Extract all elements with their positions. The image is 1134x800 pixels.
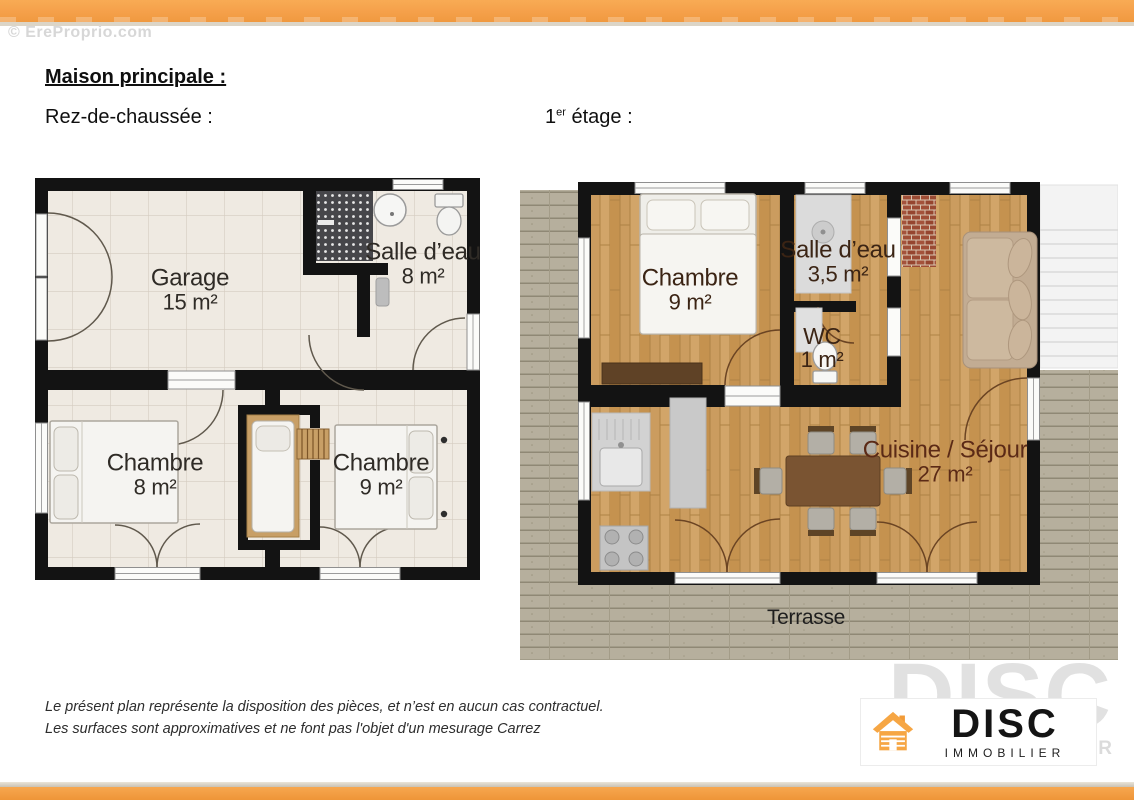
first-floor-ordinal: er <box>556 106 566 118</box>
house-icon <box>871 709 915 755</box>
room-label-salle-deau: Salle d’eau 3,5 m² <box>780 238 895 287</box>
sink-icon <box>374 194 406 226</box>
sofa-icon <box>963 232 1037 368</box>
room-label-wc: WC 1 m² <box>801 324 844 372</box>
disclaimer-line-2: Les surfaces sont approximatives et ne f… <box>45 719 604 741</box>
kitchen-island-icon <box>670 398 706 508</box>
first-floor-heading: 1er étage : <box>545 106 633 129</box>
room-label-chambre-2: Chambre 9 m² <box>333 451 430 500</box>
site-watermark: © EreProprio.com <box>8 24 152 42</box>
dresser-icon <box>602 363 702 384</box>
room-label-garage: Garage 15 m² <box>151 266 229 315</box>
disclaimer: Le présent plan représente la dispositio… <box>45 697 604 741</box>
fireplace-icon <box>902 195 936 267</box>
agency-logo: DISC IMMOBILIER <box>860 698 1097 766</box>
disclaimer-line-1: Le présent plan représente la dispositio… <box>45 697 604 719</box>
top-orange-bar <box>0 0 1134 22</box>
first-floor-plan: Chambre 9 m² Salle d’eau 3,5 m² WC 1 m² … <box>520 180 1118 660</box>
stairs-icon <box>297 429 329 459</box>
agency-brand: DISC <box>951 704 1059 744</box>
first-floor-text: étage : <box>566 106 633 128</box>
room-label-cuisine-sejour: Cuisine / Séjour 27 m² <box>863 438 1028 487</box>
kitchen-counter-icon <box>592 413 650 491</box>
top-divider-line <box>0 22 1134 26</box>
stove-icon <box>600 526 648 570</box>
exterior-stairs-icon <box>1040 185 1118 368</box>
toilet-icon <box>435 194 463 235</box>
page-title: Maison principale : <box>45 66 226 89</box>
room-label-terrasse: Terrasse <box>767 607 845 629</box>
ground-floor-heading: Rez-de-chaussée : <box>45 106 213 129</box>
room-label-chambre: Chambre 9 m² <box>642 266 739 315</box>
first-floor-number: 1 <box>545 106 556 128</box>
agency-subtitle: IMMOBILIER <box>945 746 1066 760</box>
single-bed-icon <box>247 415 299 537</box>
room-label-chambre-1: Chambre 8 m² <box>107 451 204 500</box>
bottom-orange-bar <box>0 787 1134 800</box>
room-label-salle-deau: Salle d’eau 8 m² <box>365 240 480 289</box>
agency-logo-text: DISC IMMOBILIER <box>924 704 1086 760</box>
ground-floor-plan: Garage 15 m² Salle d’eau 8 m² Chambre 8 … <box>35 178 480 580</box>
